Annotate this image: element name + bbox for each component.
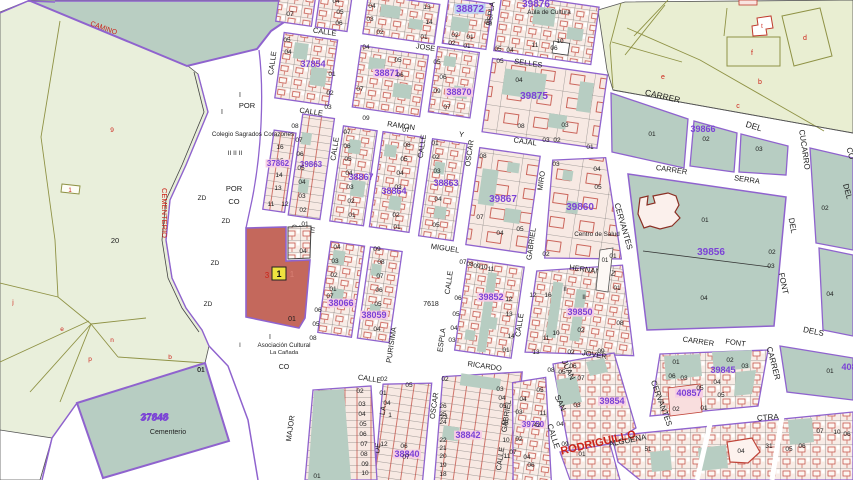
svg-text:42: 42 [533,422,541,429]
svg-text:05: 05 [452,311,460,318]
svg-text:07: 07 [376,273,384,280]
svg-text:06: 06 [668,373,676,380]
svg-text:06: 06 [335,20,343,27]
svg-text:06: 06 [798,443,806,450]
svg-text:07: 07 [356,86,364,93]
svg-text:05: 05 [432,222,440,229]
svg-text:08: 08 [309,335,317,342]
svg-text:07: 07 [402,127,410,134]
svg-text:01: 01 [313,473,321,480]
svg-text:04: 04 [284,49,292,56]
svg-text:13: 13 [274,185,282,192]
svg-text:13: 13 [532,349,540,356]
svg-text:04: 04 [498,395,506,402]
svg-text:03: 03 [767,263,775,270]
svg-text:09: 09 [373,246,381,253]
svg-text:II: II [582,294,586,301]
svg-text:b: b [758,79,762,86]
svg-text:CTRA: CTRA [757,412,780,423]
svg-text:16: 16 [544,292,552,299]
svg-text:01: 01 [826,368,834,375]
svg-text:01: 01 [328,71,336,78]
svg-text:1: 1 [276,269,281,279]
svg-text:14: 14 [425,19,433,26]
svg-text:01: 01 [502,347,510,354]
svg-text:05: 05 [336,9,344,16]
svg-text:03: 03 [298,193,306,200]
svg-text:02: 02 [542,251,550,258]
svg-text:21: 21 [439,445,447,452]
svg-text:14: 14 [275,172,283,179]
svg-text:14: 14 [507,333,515,340]
svg-text:04: 04 [713,379,721,386]
svg-text:05: 05 [283,37,291,44]
svg-text:07: 07 [343,129,351,136]
svg-text:1: 1 [290,270,295,279]
svg-text:06: 06 [843,431,851,438]
svg-text:02: 02 [726,357,734,364]
svg-text:06: 06 [359,431,367,438]
svg-text:I: I [221,109,223,116]
svg-text:12: 12 [380,441,388,448]
svg-text:03: 03 [573,402,581,409]
svg-text:01: 01 [586,144,594,151]
svg-text:04: 04 [496,230,504,237]
svg-text:04: 04 [373,326,381,333]
svg-text:07: 07 [360,441,368,448]
svg-text:20: 20 [439,453,447,460]
svg-text:07: 07 [476,214,484,221]
svg-text:39850: 39850 [567,307,592,317]
svg-text:04: 04 [519,396,527,403]
svg-text:ZD: ZD [211,260,220,267]
svg-text:08: 08 [291,123,299,130]
svg-text:05: 05 [312,321,320,328]
svg-text:08: 08 [517,123,525,130]
svg-text:16: 16 [276,144,284,151]
svg-text:06: 06 [550,45,558,52]
svg-text:02: 02 [441,376,449,383]
svg-text:07: 07 [402,454,410,461]
svg-text:03: 03 [394,184,402,191]
svg-text:02: 02 [672,406,680,413]
svg-text:j: j [11,299,13,306]
svg-text:12: 12 [505,296,513,303]
svg-text:Cementerio: Cementerio [150,429,186,436]
svg-text:03: 03 [448,337,456,344]
svg-text:10: 10 [552,330,560,337]
svg-text:CEMENTERIO: CEMENTERIO [160,188,169,238]
svg-text:01: 01 [288,316,296,323]
svg-text:02: 02 [432,154,440,161]
svg-text:09: 09 [597,348,605,355]
svg-text:08: 08 [479,153,487,160]
svg-text:39876: 39876 [522,0,550,10]
svg-text:38059: 38059 [361,310,386,320]
svg-text:01: 01 [463,43,471,50]
svg-text:11: 11 [532,42,539,49]
svg-text:04: 04 [434,196,442,203]
svg-text:10: 10 [502,437,510,444]
svg-text:02: 02 [330,272,338,279]
svg-text:02: 02 [448,40,456,47]
svg-text:04: 04 [523,454,531,461]
svg-text:92: 92 [515,436,523,443]
svg-text:Asociación Cultural: Asociación Cultural [258,342,311,349]
svg-text:39860: 39860 [566,202,594,213]
svg-text:06: 06 [296,151,304,158]
svg-text:18: 18 [439,471,447,478]
svg-text:I: I [269,334,271,341]
svg-text:04: 04 [556,421,564,428]
svg-text:02: 02 [553,137,561,144]
svg-text:ZD: ZD [204,301,213,308]
svg-text:02: 02 [821,205,829,212]
svg-text:06: 06 [314,307,322,314]
svg-text:05: 05 [558,369,566,376]
svg-text:02: 02 [768,249,776,256]
svg-text:01: 01 [393,224,401,231]
svg-text:3: 3 [265,271,270,280]
svg-text:01: 01 [613,285,621,292]
svg-text:04: 04 [593,166,601,173]
svg-text:d: d [803,35,807,42]
svg-text:06: 06 [375,287,383,294]
svg-text:04: 04 [700,295,708,302]
svg-text:II II II: II II II [228,150,243,157]
svg-text:04: 04 [368,3,376,10]
svg-text:03: 03 [515,409,523,416]
svg-text:03: 03 [433,168,441,175]
svg-text:07: 07 [816,428,824,435]
svg-text:Colegio Sagrados Corazones: Colegio Sagrados Corazones [212,131,294,138]
svg-text:03: 03 [741,363,749,370]
svg-text:12: 12 [529,292,537,299]
svg-text:03: 03 [346,184,354,191]
svg-text:02: 02 [567,349,575,356]
svg-text:05: 05 [496,58,504,65]
svg-text:06: 06 [454,295,462,302]
svg-text:05: 05 [394,57,402,64]
svg-text:02: 02 [356,388,364,395]
svg-text:01: 01 [420,34,428,41]
svg-text:05: 05 [400,156,408,163]
svg-text:1: 1 [388,412,392,419]
svg-text:05: 05 [785,446,793,453]
svg-text:07: 07 [509,449,517,456]
svg-text:04: 04 [345,170,353,177]
svg-text:La Cañada: La Cañada [270,350,299,356]
svg-text:08: 08 [377,259,385,266]
svg-text:06: 06 [484,19,492,26]
svg-text:05: 05 [717,392,725,399]
svg-text:04: 04 [299,248,307,255]
svg-text:04: 04 [332,0,340,5]
svg-text:03: 03 [324,104,332,111]
svg-text:03: 03 [358,401,366,408]
svg-text:p: p [88,356,92,363]
svg-text:ZD: ZD [198,195,207,202]
svg-text:03: 03 [331,258,339,265]
svg-text:05: 05 [494,46,502,53]
svg-text:05: 05 [405,382,413,389]
svg-text:01: 01 [379,390,387,397]
svg-text:01: 01 [348,212,356,219]
svg-text:c: c [736,103,740,110]
svg-text:39845: 39845 [710,365,735,375]
svg-text:04: 04 [362,44,370,51]
svg-text:05: 05 [516,226,524,233]
svg-text:38863: 38863 [433,178,458,188]
svg-text:I: I [239,92,241,99]
svg-text:03: 03 [561,122,569,129]
svg-text:02: 02 [376,29,384,36]
svg-text:03: 03 [680,375,688,382]
svg-text:05: 05 [499,403,507,410]
svg-text:51: 51 [645,447,652,453]
svg-text:9: 9 [110,127,114,134]
svg-text:09: 09 [362,115,370,122]
svg-text:04: 04 [298,179,306,186]
svg-text:08: 08 [360,451,368,458]
svg-text:ZD: ZD [222,218,231,225]
svg-text:26: 26 [439,403,447,410]
svg-text:05: 05 [297,165,305,172]
svg-text:01: 01 [701,217,709,224]
svg-text:19: 19 [439,462,447,469]
svg-text:03: 03 [552,161,560,168]
svg-text:31: 31 [765,443,773,450]
svg-text:11: 11 [268,201,275,208]
svg-text:05: 05 [374,301,382,308]
svg-text:02: 02 [392,212,400,219]
svg-text:09: 09 [433,88,441,95]
svg-text:05: 05 [433,59,441,66]
svg-text:38872: 38872 [456,4,484,15]
svg-text:01: 01 [602,258,609,264]
svg-text:02: 02 [347,198,355,205]
svg-text:39856: 39856 [697,247,725,258]
svg-text:05: 05 [696,385,704,392]
svg-text:04: 04 [506,47,514,54]
svg-text:07: 07 [443,104,451,111]
svg-text:04: 04 [450,325,458,332]
svg-text:07: 07 [577,375,585,382]
svg-text:39875: 39875 [520,91,548,102]
svg-text:06: 06 [396,72,404,79]
svg-text:01: 01 [700,405,708,412]
svg-text:02: 02 [451,32,459,39]
svg-text:01: 01 [466,34,474,41]
svg-text:01: 01 [197,367,205,374]
svg-text:04: 04 [396,170,404,177]
svg-text:01: 01 [301,221,309,228]
svg-text:f: f [751,50,753,57]
svg-text:07: 07 [295,137,303,144]
svg-text:08: 08 [403,142,411,149]
svg-text:01: 01 [648,131,656,138]
svg-text:04: 04 [358,411,366,418]
svg-text:03: 03 [366,16,374,23]
svg-text:39852: 39852 [478,292,503,302]
svg-text:408: 408 [841,362,853,372]
svg-text:02: 02 [702,136,710,143]
svg-text:08: 08 [616,320,624,327]
svg-text:06: 06 [343,143,351,150]
svg-text:7618: 7618 [423,301,439,308]
svg-text:37854: 37854 [300,59,325,69]
svg-text:06: 06 [569,363,577,370]
svg-text:09: 09 [361,461,369,468]
svg-text:08: 08 [501,420,509,427]
svg-text:06: 06 [439,74,447,81]
svg-text:10: 10 [361,470,369,477]
svg-text:II: II [563,286,567,293]
svg-text:02: 02 [299,207,307,214]
svg-text:38870: 38870 [446,87,471,97]
svg-text:11: 11 [540,410,547,417]
svg-text:CO: CO [279,364,290,371]
svg-text:05: 05 [344,156,352,163]
svg-text:37862: 37862 [267,159,290,168]
svg-text:23: 23 [440,414,448,421]
svg-text:POR: POR [226,184,243,193]
svg-text:06: 06 [400,443,408,450]
svg-text:05: 05 [594,184,602,191]
svg-text:08: 08 [547,367,555,374]
svg-text:11: 11 [488,266,495,273]
svg-text:11: 11 [543,335,550,342]
svg-text:04: 04 [515,77,523,84]
svg-text:09: 09 [561,441,569,448]
svg-text:04: 04 [826,291,834,298]
svg-text:n: n [110,337,114,344]
svg-text:13: 13 [423,4,431,11]
svg-text:12: 12 [281,201,289,208]
svg-text:10: 10 [556,38,564,45]
svg-text:13: 13 [505,311,513,318]
svg-text:03: 03 [542,137,550,144]
svg-text:CO: CO [228,197,239,206]
svg-text:b: b [168,354,172,361]
svg-text:38842: 38842 [455,430,480,440]
svg-text:04: 04 [333,244,341,251]
svg-text:39854: 39854 [599,396,624,406]
svg-text:06: 06 [527,462,535,469]
svg-text:e: e [661,74,665,81]
svg-text:10: 10 [833,429,841,436]
svg-text:03: 03 [496,386,504,393]
svg-text:07: 07 [286,11,294,18]
svg-text:39866: 39866 [690,124,715,134]
svg-text:39867: 39867 [489,194,517,205]
svg-text:03: 03 [755,146,763,153]
svg-text:05: 05 [359,421,367,428]
svg-text:37848: 37848 [141,412,169,423]
svg-text:Centro de Salud: Centro de Salud [574,231,620,238]
svg-text:e: e [60,326,64,333]
svg-text:Aula de Cultura: Aula de Cultura [527,9,571,16]
svg-text:04: 04 [737,448,745,455]
svg-text:01: 01 [578,451,586,458]
svg-text:04: 04 [383,400,391,407]
svg-text:02: 02 [380,376,388,383]
svg-text:01: 01 [431,140,439,147]
svg-text:02: 02 [577,327,585,334]
svg-text:01: 01 [672,359,680,366]
svg-text:02: 02 [326,90,334,97]
svg-text:20: 20 [111,236,119,245]
svg-text:POR: POR [239,101,256,110]
svg-text:07: 07 [326,293,334,300]
svg-text:05: 05 [536,387,544,394]
svg-text:01: 01 [609,253,617,260]
svg-text:22: 22 [439,437,447,444]
svg-text:01: 01 [329,286,337,293]
